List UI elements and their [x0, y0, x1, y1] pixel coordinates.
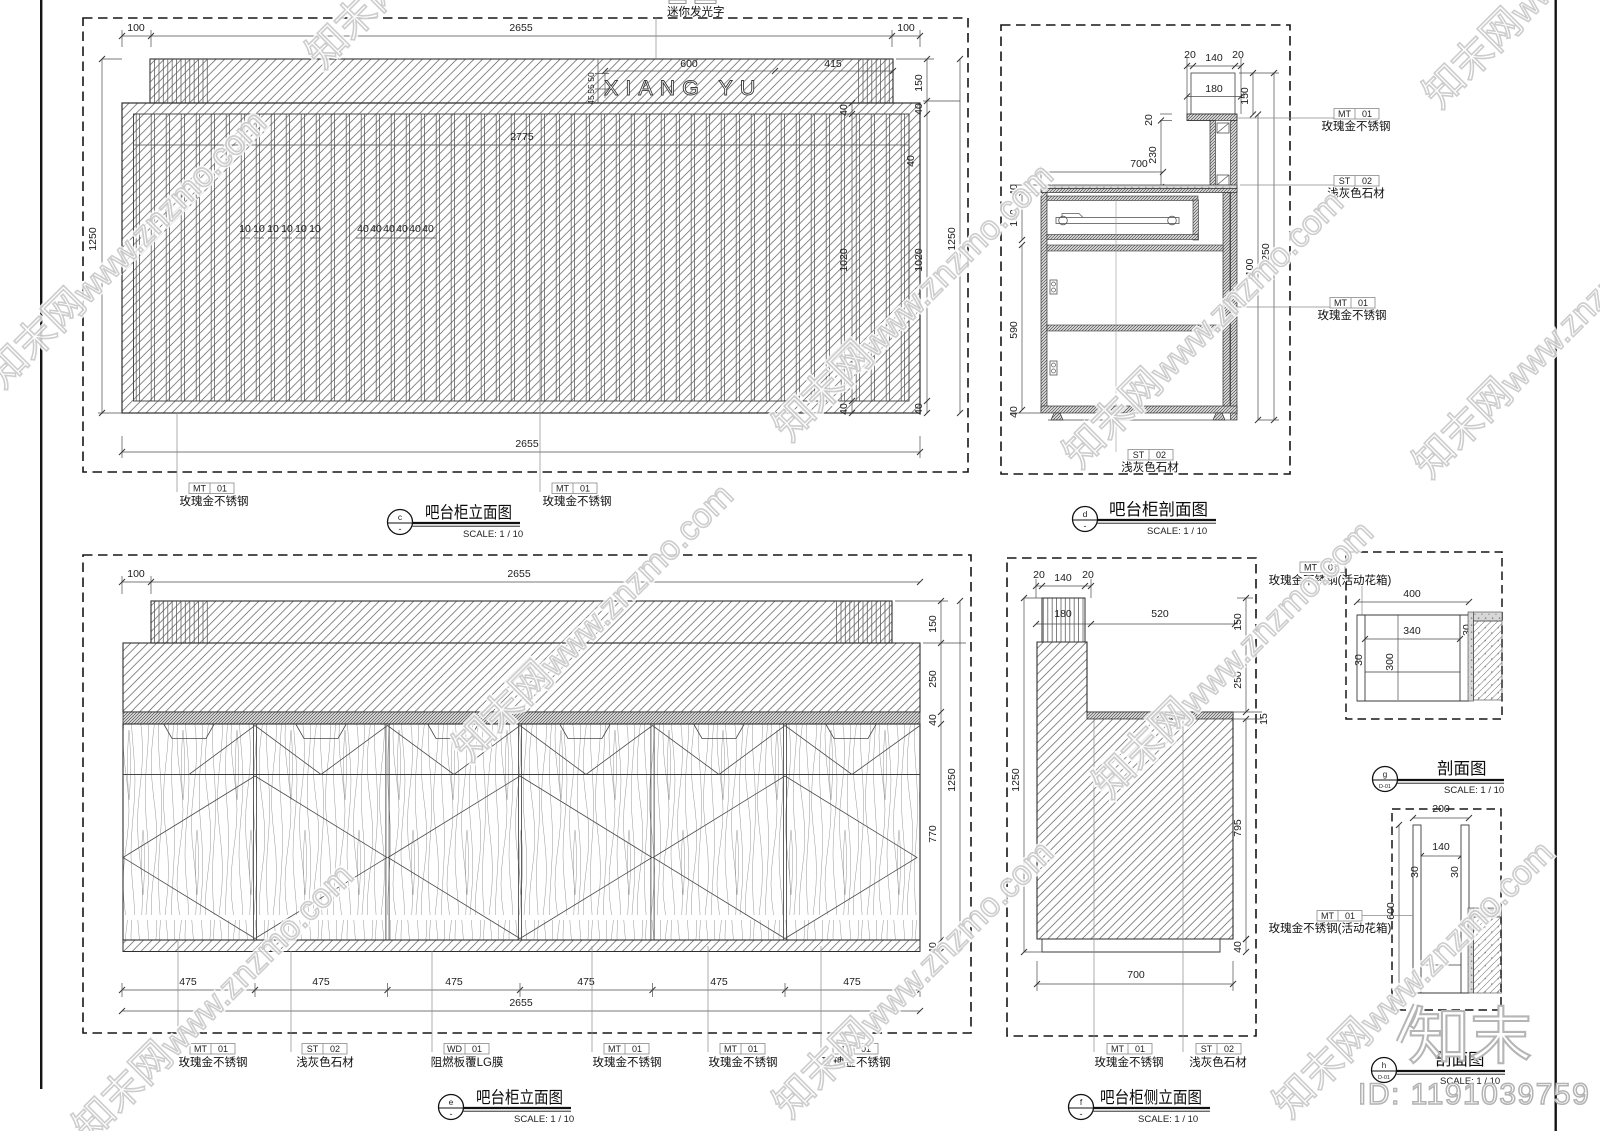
- svg-text:475: 475: [312, 976, 330, 988]
- svg-text:50: 50: [586, 72, 596, 82]
- svg-text:02: 02: [1362, 176, 1372, 186]
- svg-text:浅灰色石材: 浅灰色石材: [1121, 460, 1179, 474]
- svg-text:10: 10: [253, 223, 265, 235]
- svg-text:20: 20: [1082, 569, 1094, 581]
- svg-text:ST: ST: [307, 1044, 319, 1054]
- svg-text:10: 10: [239, 223, 251, 235]
- svg-text:知末: 知末: [1408, 1003, 1532, 1072]
- svg-text:MT: MT: [193, 483, 206, 493]
- svg-text:100: 100: [897, 22, 915, 34]
- svg-text:01: 01: [1135, 1044, 1145, 1054]
- svg-text:300: 300: [1384, 653, 1396, 671]
- svg-text:玫瑰金不锈钢: 玫瑰金不锈钢: [1095, 1055, 1164, 1069]
- svg-text:MT: MT: [1111, 1044, 1124, 1054]
- svg-text:180: 180: [1205, 83, 1223, 95]
- svg-text:-: -: [399, 524, 402, 534]
- svg-text:180: 180: [1054, 608, 1072, 620]
- svg-text:01: 01: [580, 483, 590, 493]
- svg-text:迷你发光字: 迷你发光字: [667, 5, 725, 19]
- svg-text:1250: 1250: [946, 768, 958, 792]
- svg-text:02: 02: [330, 1044, 340, 1054]
- svg-text:SCALE: 1 / 10: SCALE: 1 / 10: [463, 529, 523, 540]
- svg-text:40: 40: [409, 223, 421, 235]
- svg-text:玫瑰金不锈钢: 玫瑰金不锈钢: [1322, 119, 1391, 133]
- svg-text:2655: 2655: [509, 997, 533, 1009]
- svg-text:150: 150: [927, 615, 939, 633]
- svg-text:40: 40: [927, 714, 939, 726]
- svg-text:01: 01: [472, 1044, 482, 1054]
- svg-text:玫瑰金不锈钢: 玫瑰金不锈钢: [1318, 308, 1387, 322]
- svg-text:e: e: [449, 1097, 454, 1107]
- svg-text:30: 30: [1353, 654, 1365, 666]
- svg-text:01: 01: [748, 1044, 758, 1054]
- svg-text:40: 40: [905, 155, 917, 167]
- svg-text:700: 700: [1127, 969, 1145, 981]
- svg-text:WD: WD: [447, 1044, 462, 1054]
- svg-text:20: 20: [1033, 569, 1045, 581]
- svg-text:g: g: [1383, 770, 1387, 779]
- svg-text:140: 140: [1054, 572, 1072, 584]
- svg-text:150: 150: [1239, 87, 1251, 105]
- svg-text:415: 415: [824, 58, 842, 70]
- svg-text:140: 140: [1205, 52, 1223, 64]
- svg-text:40: 40: [370, 223, 382, 235]
- svg-text:795: 795: [1232, 819, 1244, 837]
- svg-text:玫瑰金不锈钢: 玫瑰金不锈钢: [593, 1055, 662, 1069]
- svg-text:1250: 1250: [1010, 768, 1022, 792]
- svg-text:MT: MT: [1334, 298, 1347, 308]
- svg-text:ID: 1191039759: ID: 1191039759: [1358, 1078, 1590, 1111]
- svg-text:10: 10: [267, 223, 279, 235]
- svg-text:40: 40: [913, 103, 925, 115]
- svg-text:玫瑰金不锈钢(活动花箱): 玫瑰金不锈钢(活动花箱): [1269, 921, 1392, 935]
- svg-text:-: -: [1080, 1109, 1083, 1119]
- svg-text:h: h: [1382, 1061, 1386, 1070]
- svg-text:700: 700: [1130, 158, 1148, 170]
- svg-text:吧台柜立面图: 吧台柜立面图: [425, 503, 512, 522]
- svg-text:MT: MT: [556, 483, 569, 493]
- svg-text:2655: 2655: [509, 22, 533, 34]
- svg-text:20: 20: [1143, 114, 1155, 126]
- svg-text:SCALE: 1 / 10: SCALE: 1 / 10: [1444, 785, 1504, 796]
- svg-text:01: 01: [217, 483, 227, 493]
- svg-text:40: 40: [383, 223, 395, 235]
- svg-text:30: 30: [1409, 866, 1421, 878]
- svg-text:ST: ST: [1339, 176, 1351, 186]
- svg-text:340: 340: [1403, 625, 1421, 637]
- svg-text:XIANG YU: XIANG YU: [604, 76, 762, 100]
- svg-text:20: 20: [1184, 49, 1196, 61]
- svg-text:01: 01: [1358, 298, 1368, 308]
- svg-text:吧台柜立面图: 吧台柜立面图: [476, 1088, 563, 1107]
- svg-text:30: 30: [1449, 866, 1461, 878]
- svg-text:浅灰色石材: 浅灰色石材: [1189, 1055, 1247, 1069]
- svg-text:01: 01: [1362, 109, 1372, 119]
- svg-text:SCALE: 1 / 10: SCALE: 1 / 10: [1147, 526, 1207, 537]
- svg-text:475: 475: [710, 976, 728, 988]
- svg-text:SCALE: 1 / 10: SCALE: 1 / 10: [1138, 1114, 1198, 1125]
- svg-text:100: 100: [127, 22, 145, 34]
- svg-text:475: 475: [445, 976, 463, 988]
- svg-text:MT: MT: [1338, 109, 1351, 119]
- svg-text:01: 01: [1345, 911, 1355, 921]
- svg-text:475: 475: [843, 976, 861, 988]
- svg-text:770: 770: [927, 825, 939, 843]
- svg-text:250: 250: [927, 670, 939, 688]
- svg-text:玫瑰金不锈钢: 玫瑰金不锈钢: [543, 494, 612, 508]
- svg-text:600: 600: [1385, 902, 1397, 920]
- svg-text:100: 100: [127, 568, 145, 580]
- svg-text:ST: ST: [1201, 1044, 1213, 1054]
- svg-text:01: 01: [632, 1044, 642, 1054]
- svg-text:玫瑰金不锈钢: 玫瑰金不锈钢: [179, 1055, 248, 1069]
- svg-text:2775: 2775: [510, 131, 534, 143]
- svg-text:40: 40: [1008, 406, 1020, 418]
- svg-text:-: -: [450, 1109, 453, 1119]
- svg-text:520: 520: [1151, 608, 1169, 620]
- svg-text:ST: ST: [1133, 450, 1145, 460]
- svg-text:01: 01: [218, 1044, 228, 1054]
- svg-text:1250: 1250: [87, 227, 99, 251]
- svg-text:1020: 1020: [838, 248, 850, 272]
- svg-text:玫瑰金不锈钢: 玫瑰金不锈钢: [180, 494, 249, 508]
- svg-text:40: 40: [1232, 941, 1244, 953]
- svg-text:140: 140: [1432, 841, 1450, 853]
- svg-text:玫瑰金不锈钢: 玫瑰金不锈钢: [709, 1055, 778, 1069]
- svg-text:55: 55: [586, 84, 596, 94]
- svg-text:D-01: D-01: [1379, 784, 1391, 790]
- svg-text:20: 20: [1232, 49, 1244, 61]
- svg-text:10: 10: [309, 223, 321, 235]
- svg-text:40: 40: [357, 223, 369, 235]
- svg-text:2655: 2655: [515, 438, 539, 450]
- svg-text:吧台柜侧立面图: 吧台柜侧立面图: [1100, 1088, 1202, 1107]
- svg-text:600: 600: [680, 58, 698, 70]
- svg-text:10: 10: [281, 223, 293, 235]
- svg-text:阻燃板覆LG膜: 阻燃板覆LG膜: [431, 1055, 504, 1069]
- svg-text:150: 150: [913, 74, 925, 92]
- svg-text:400: 400: [1403, 588, 1421, 600]
- svg-text:02: 02: [1156, 450, 1166, 460]
- svg-text:40: 40: [838, 104, 850, 116]
- svg-text:475: 475: [179, 976, 197, 988]
- svg-text:MT: MT: [724, 1044, 737, 1054]
- svg-text:10: 10: [295, 223, 307, 235]
- svg-text:吧台柜剖面图: 吧台柜剖面图: [1109, 500, 1208, 519]
- svg-text:590: 590: [1008, 321, 1020, 339]
- svg-text:40: 40: [913, 403, 925, 415]
- svg-text:2655: 2655: [507, 568, 531, 580]
- svg-text:200: 200: [1432, 803, 1450, 815]
- svg-text:浅灰色石材: 浅灰色石材: [296, 1055, 354, 1069]
- svg-text:剖面图: 剖面图: [1437, 759, 1487, 778]
- svg-text:230: 230: [1147, 146, 1159, 164]
- svg-text:02: 02: [1224, 1044, 1234, 1054]
- svg-text:40: 40: [396, 223, 408, 235]
- svg-text:40: 40: [422, 223, 434, 235]
- svg-text:MT: MT: [1321, 911, 1334, 921]
- svg-text:MT: MT: [608, 1044, 621, 1054]
- svg-text:SCALE: 1 / 10: SCALE: 1 / 10: [514, 1114, 574, 1125]
- svg-text:d: d: [1083, 509, 1088, 519]
- svg-text:-: -: [1084, 521, 1087, 531]
- svg-text:15: 15: [1258, 713, 1270, 725]
